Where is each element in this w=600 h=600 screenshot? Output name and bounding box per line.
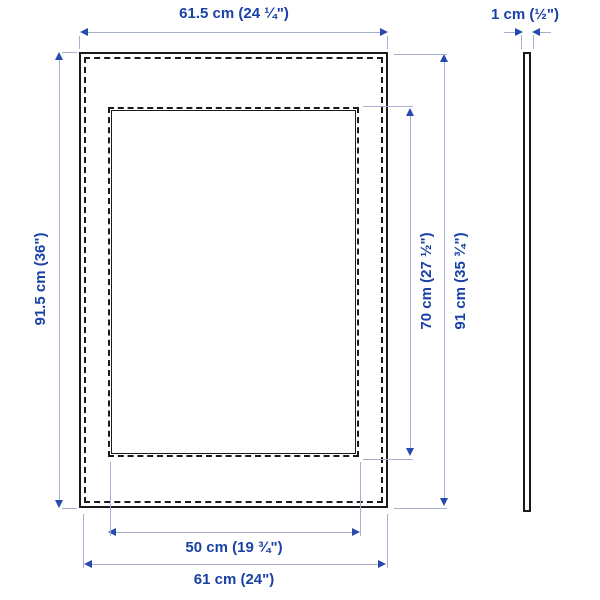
arrowhead-right [352, 528, 360, 536]
dimension-line-opening-height [410, 112, 411, 452]
opening-width-label: 50 cm (19 ¾") [110, 539, 358, 556]
arrowhead-right [378, 560, 386, 568]
extension-line [387, 36, 388, 49]
arrowhead-down [406, 448, 414, 456]
product-dimension-diagram: 61.5 cm (24 ¼") 91.5 cm (36") 70 cm (27 … [0, 0, 600, 600]
arrowhead-left [80, 28, 88, 36]
extension-line [394, 508, 447, 509]
dimension-line-opening-width [112, 532, 356, 533]
extension-line [387, 514, 388, 568]
arrowhead-up [55, 52, 63, 60]
arrowhead-up [440, 54, 448, 62]
frame-opening-inner-line [111, 110, 356, 454]
extension-line [62, 508, 77, 509]
extension-line [394, 54, 447, 55]
outer-height-label: 91.5 cm (36") [31, 194, 51, 364]
frame-opening-outline [108, 107, 359, 457]
dimension-line-frame-width [88, 564, 382, 565]
extension-line [83, 514, 84, 568]
frame-side-profile [523, 52, 531, 512]
outer-width-label: 61.5 cm (24 ¼") [80, 5, 388, 22]
arrowhead-left [84, 560, 92, 568]
dimension-line-outer-width [86, 32, 382, 33]
extension-line [79, 36, 80, 49]
opening-height-label: 70 cm (27 ½") [417, 196, 437, 366]
extension-line [360, 462, 361, 536]
extension-line [521, 35, 522, 49]
dimension-line-outer-height [59, 56, 60, 502]
frame-width-label: 61 cm (24") [85, 571, 383, 588]
arrowhead-down [55, 500, 63, 508]
frame-height-label: 91 cm (35 ¾") [451, 196, 471, 366]
extension-line [62, 52, 77, 53]
arrowhead-right [380, 28, 388, 36]
arrowhead-up [406, 108, 414, 116]
extension-line [533, 35, 534, 49]
dimension-line-frame-height [444, 58, 445, 502]
arrowhead-down [440, 498, 448, 506]
thickness-label: 1 cm (½") [455, 6, 595, 23]
extension-line [110, 462, 111, 536]
extension-line [363, 106, 413, 107]
extension-line [363, 459, 413, 460]
